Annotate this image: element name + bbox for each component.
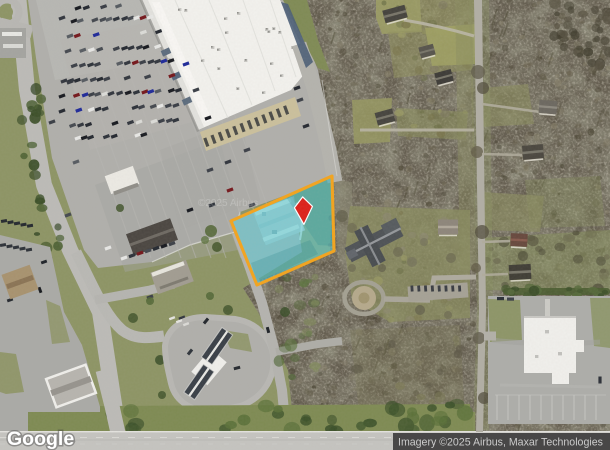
svg-text:Google: Google xyxy=(7,428,74,450)
svg-text:Imagery ©2025 Airbus, Maxar Te: Imagery ©2025 Airbus, Maxar Technologies xyxy=(398,437,603,449)
svg-text:©2025 Airbus: ©2025 Airbus xyxy=(198,198,258,209)
